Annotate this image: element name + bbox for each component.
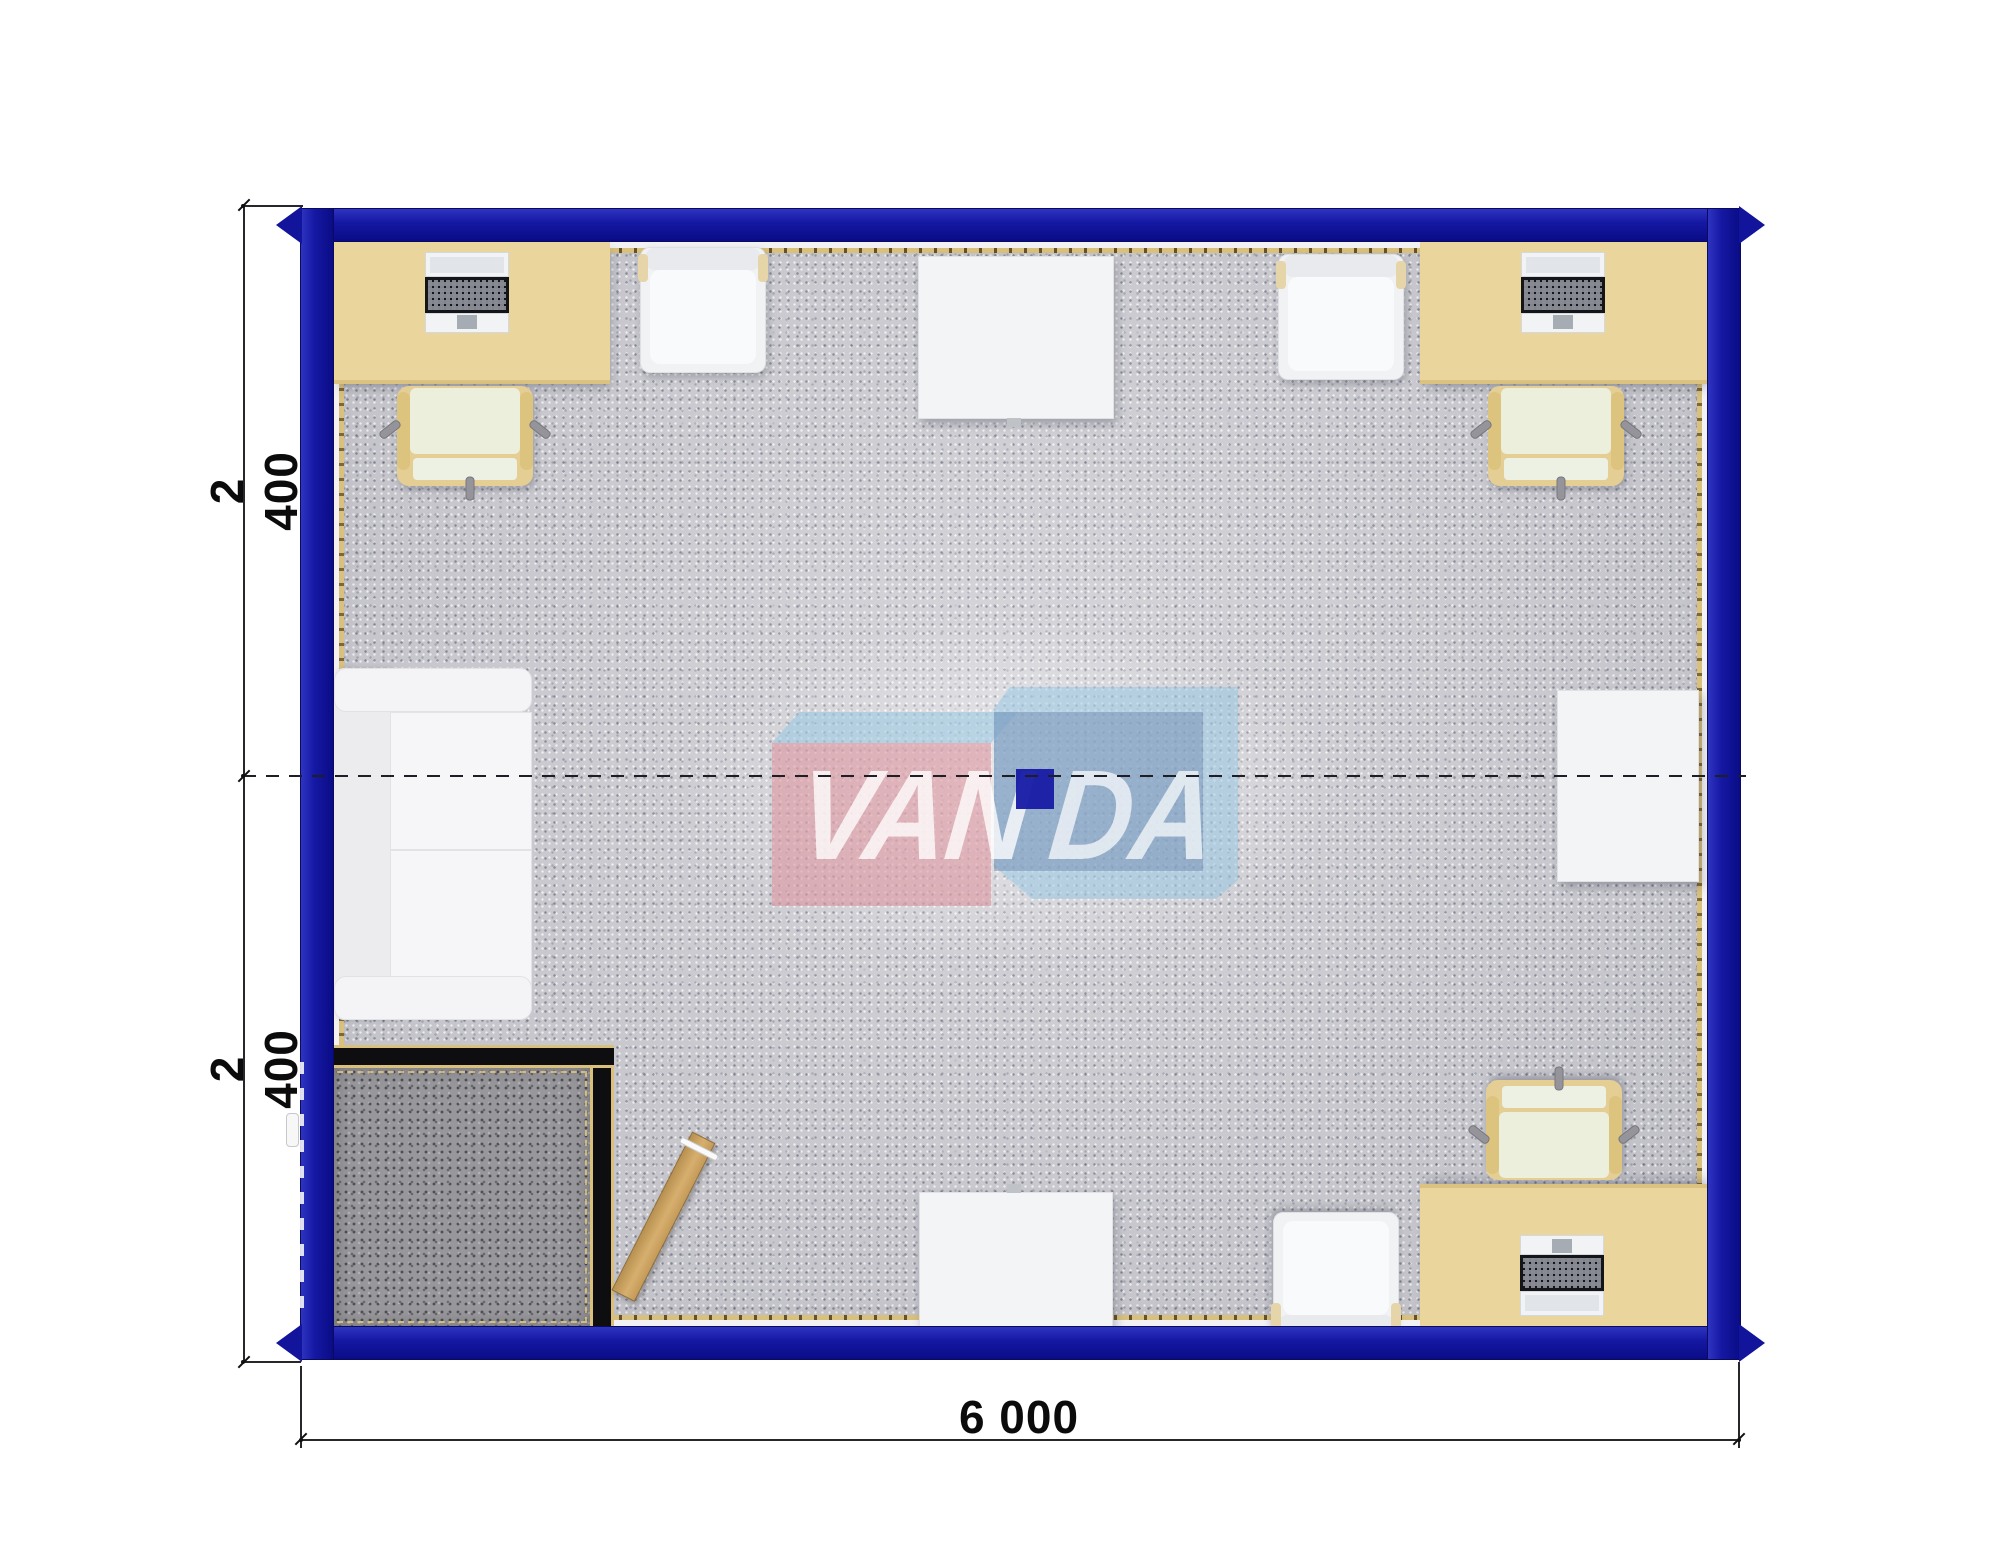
dimension-node: [299, 1438, 303, 1442]
laptop-touchpad: [1553, 315, 1573, 329]
chair-armrest: [1396, 261, 1406, 289]
laptop-keyboard: [1520, 1255, 1604, 1291]
chair-armrest: [758, 254, 768, 282]
computer-top-left: [425, 252, 509, 333]
entry-partition-top: [328, 1045, 614, 1068]
chair-armrest: [638, 254, 648, 282]
office-chair-top-right: [1488, 386, 1624, 486]
extension-line-top-left: [243, 205, 303, 207]
chair-armrest: [1276, 261, 1286, 289]
dimension-label-bottom: 6 000: [919, 1390, 1119, 1436]
wall-right: [1707, 208, 1741, 1360]
cabinet-right-middle: [1557, 690, 1699, 882]
corner-fitting-bottom-left: [276, 1324, 302, 1362]
caster-wheel: [466, 477, 475, 501]
dimension-node: [1737, 1438, 1741, 1442]
dimension-node: [241, 204, 245, 208]
chair-footrest: [1504, 458, 1608, 480]
laptop-touchpad: [1552, 1239, 1572, 1253]
corner-fitting-bottom-right: [1739, 1324, 1765, 1362]
chair-seat: [1501, 388, 1611, 454]
laptop-keyboard: [425, 277, 509, 313]
laptop-screen: [425, 252, 509, 277]
visitor-chair-bottom: [1273, 1212, 1399, 1338]
caster-wheel: [1555, 1067, 1564, 1091]
laptop-screen: [1521, 252, 1605, 277]
floor-plan-canvas: VAN DA 2 400 2 400 6 000: [0, 0, 2000, 1561]
logo-text-da: DA: [1044, 752, 1220, 880]
table-leg: [1007, 1184, 1021, 1193]
sofa-cushion: [390, 850, 532, 988]
sofa-armrest: [334, 668, 532, 712]
dimension-label-left-top: 2 400: [200, 431, 244, 551]
wall-top: [300, 208, 1741, 242]
entry-room-floor: [334, 1068, 590, 1326]
centerline-dashed: [243, 775, 1746, 777]
entry-partition-right: [590, 1068, 614, 1327]
caster-wheel: [1557, 477, 1566, 501]
wall-left: [300, 208, 334, 1360]
dimension-label-left-bottom: 2 400: [200, 1009, 244, 1129]
laptop-screen: [1520, 1291, 1604, 1316]
table-bottom-center: [919, 1192, 1113, 1342]
table-leg: [1007, 418, 1021, 427]
wall-bottom: [300, 1326, 1741, 1360]
exterior-door-handle: [286, 1113, 299, 1147]
computer-top-right: [1521, 252, 1605, 333]
corner-fitting-top-right: [1739, 206, 1765, 244]
chair-seat: [1499, 1112, 1609, 1178]
chair-footrest: [413, 458, 517, 480]
office-chair-top-left: [397, 386, 533, 486]
extension-line-bottom-left: [243, 1361, 301, 1363]
table-top-center: [918, 256, 1114, 419]
sofa-cushion: [390, 712, 532, 850]
laptop-keyboard: [1521, 277, 1605, 313]
computer-bottom-right: [1520, 1235, 1604, 1316]
sofa-armrest: [334, 976, 532, 1020]
office-chair-bottom-right: [1486, 1080, 1622, 1180]
corner-fitting-top-left: [276, 206, 302, 244]
laptop-touchpad: [457, 315, 477, 329]
sofa-backrest: [334, 668, 390, 1020]
visitor-chair-top-left: [640, 247, 766, 373]
logo-text-van: VAN: [792, 752, 1035, 880]
dimension-node: [241, 774, 245, 778]
logo-box-top-face: [772, 712, 1018, 743]
sofa: [334, 668, 532, 1020]
dimension-node: [241, 1360, 245, 1364]
chair-footrest: [1502, 1086, 1606, 1108]
visitor-chair-top-right: [1278, 254, 1404, 380]
chair-seat: [410, 388, 520, 454]
dimension-line-left: [243, 205, 245, 1363]
